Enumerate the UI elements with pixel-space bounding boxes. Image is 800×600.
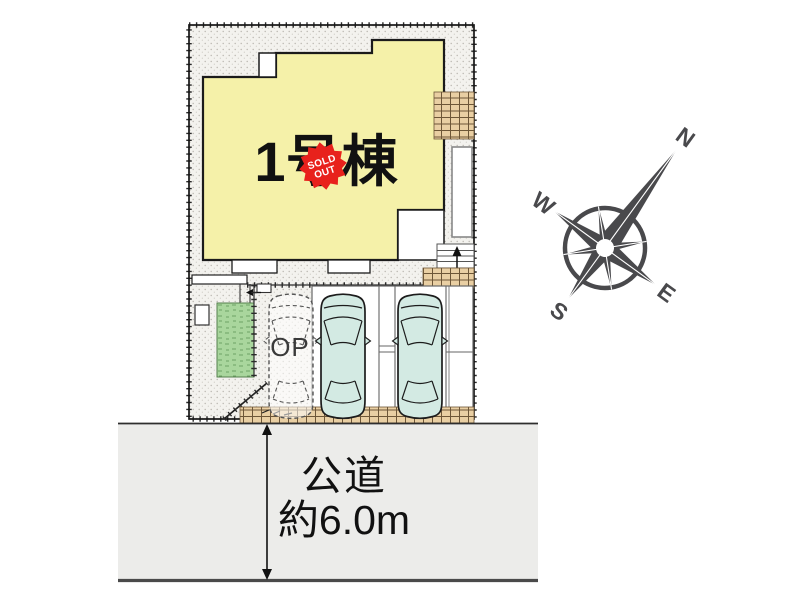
option-parking-label: OP xyxy=(270,332,310,362)
road-width-label: 約6.0m xyxy=(278,497,410,543)
site-plan-svg: OP 1号棟 SOLD OUT 公道 約6.0m xyxy=(0,0,800,600)
building-step-left xyxy=(232,260,277,273)
parked-car-2 xyxy=(393,294,448,418)
balcony xyxy=(452,147,472,237)
garden-grass xyxy=(217,303,254,377)
entrance-stairs xyxy=(437,244,474,270)
road-name-label: 公道 xyxy=(301,453,387,499)
wall-bar xyxy=(192,275,247,284)
site-plan: OP 1号棟 SOLD OUT xyxy=(189,25,474,423)
building-notch xyxy=(259,53,276,77)
terrace-brick xyxy=(434,92,474,139)
meter-box xyxy=(257,284,271,293)
compass-letter-s: S xyxy=(545,296,573,326)
road: 公道 約6.0m xyxy=(118,424,538,581)
utility-box xyxy=(195,305,209,325)
site-plan-canvas: OP 1号棟 SOLD OUT 公道 約6.0m xyxy=(0,0,800,600)
building-step-right xyxy=(328,260,370,273)
compass-letter-w: W xyxy=(527,186,560,220)
porch-brick xyxy=(423,268,474,288)
parked-car-1 xyxy=(316,294,371,418)
compass-letter-n: N xyxy=(671,122,700,153)
compass-rose: N W S E xyxy=(481,76,761,371)
compass-letter-e: E xyxy=(653,278,681,308)
